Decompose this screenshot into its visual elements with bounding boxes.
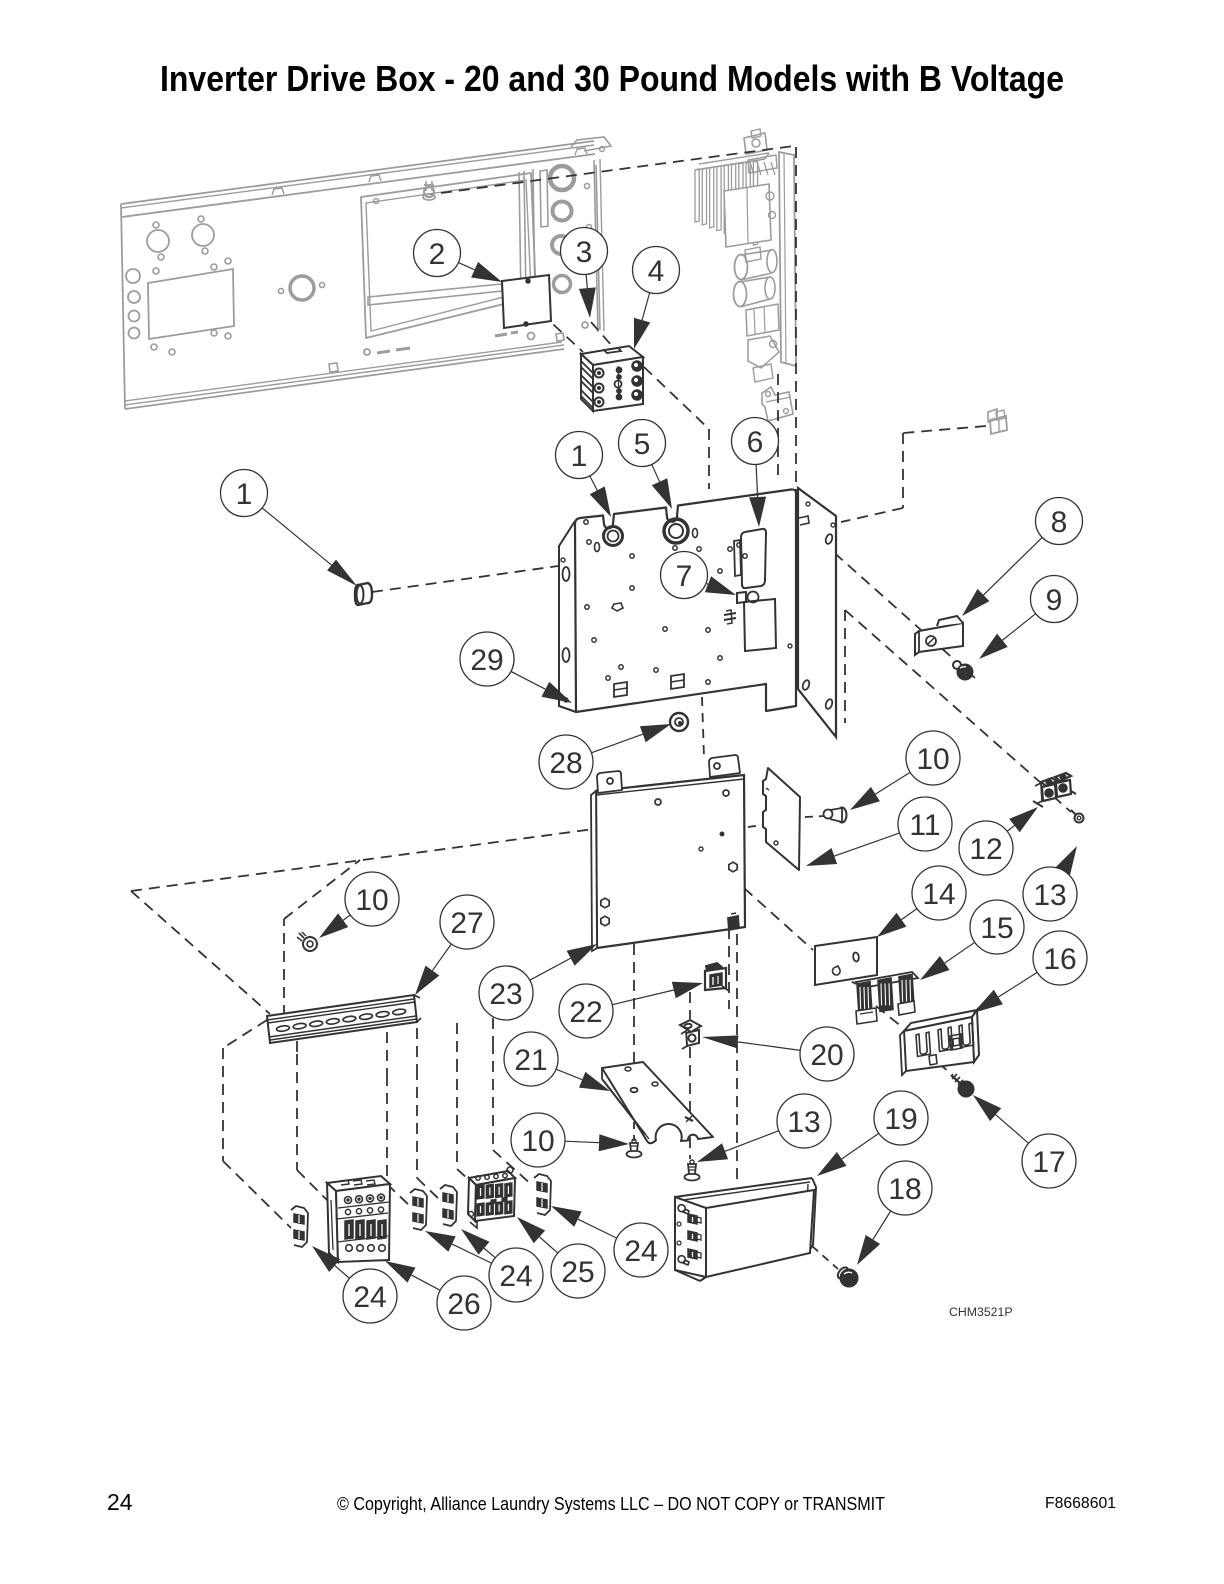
svg-text:3: 3 — [576, 236, 593, 269]
svg-text:29: 29 — [470, 644, 503, 677]
svg-text:CHM3521P: CHM3521P — [949, 1305, 1013, 1319]
svg-text:23: 23 — [489, 978, 522, 1011]
svg-text:22: 22 — [569, 996, 602, 1029]
svg-text:25: 25 — [561, 1256, 594, 1289]
svg-text:21: 21 — [514, 1044, 547, 1077]
svg-text:8: 8 — [1051, 506, 1068, 539]
svg-text:© Copyright, Alliance Laundry: © Copyright, Alliance Laundry Systems LL… — [337, 1494, 885, 1514]
svg-text:4: 4 — [648, 255, 665, 288]
svg-text:14: 14 — [922, 878, 955, 911]
svg-text:9: 9 — [1046, 584, 1063, 617]
svg-text:2: 2 — [429, 238, 446, 271]
svg-text:17: 17 — [1032, 1146, 1065, 1179]
svg-text:28: 28 — [549, 747, 582, 780]
svg-text:13: 13 — [1033, 879, 1066, 912]
svg-text:5: 5 — [634, 428, 651, 461]
svg-text:20: 20 — [810, 1039, 843, 1072]
svg-text:24: 24 — [499, 1260, 532, 1293]
svg-text:16: 16 — [1043, 943, 1076, 976]
svg-text:1: 1 — [236, 478, 253, 511]
svg-text:1: 1 — [571, 440, 588, 473]
svg-text:24: 24 — [353, 1281, 386, 1314]
svg-text:10: 10 — [916, 743, 949, 776]
svg-text:24: 24 — [107, 1489, 133, 1515]
svg-text:7: 7 — [676, 560, 693, 593]
svg-text:27: 27 — [450, 907, 483, 940]
svg-text:12: 12 — [969, 833, 1002, 866]
svg-text:6: 6 — [747, 426, 764, 459]
svg-text:Inverter Drive Box - 20 and 30: Inverter Drive Box - 20 and 30 Pound Mod… — [160, 58, 1064, 99]
svg-text:18: 18 — [888, 1173, 921, 1206]
svg-text:10: 10 — [521, 1125, 554, 1158]
svg-text:13: 13 — [787, 1106, 820, 1139]
svg-text:11: 11 — [909, 809, 940, 842]
svg-text:10: 10 — [355, 884, 388, 917]
svg-text:24: 24 — [624, 1235, 657, 1268]
svg-text:19: 19 — [884, 1103, 917, 1136]
svg-text:F8668601: F8668601 — [1045, 1495, 1116, 1512]
svg-text:26: 26 — [447, 1288, 480, 1321]
svg-text:15: 15 — [980, 912, 1013, 945]
